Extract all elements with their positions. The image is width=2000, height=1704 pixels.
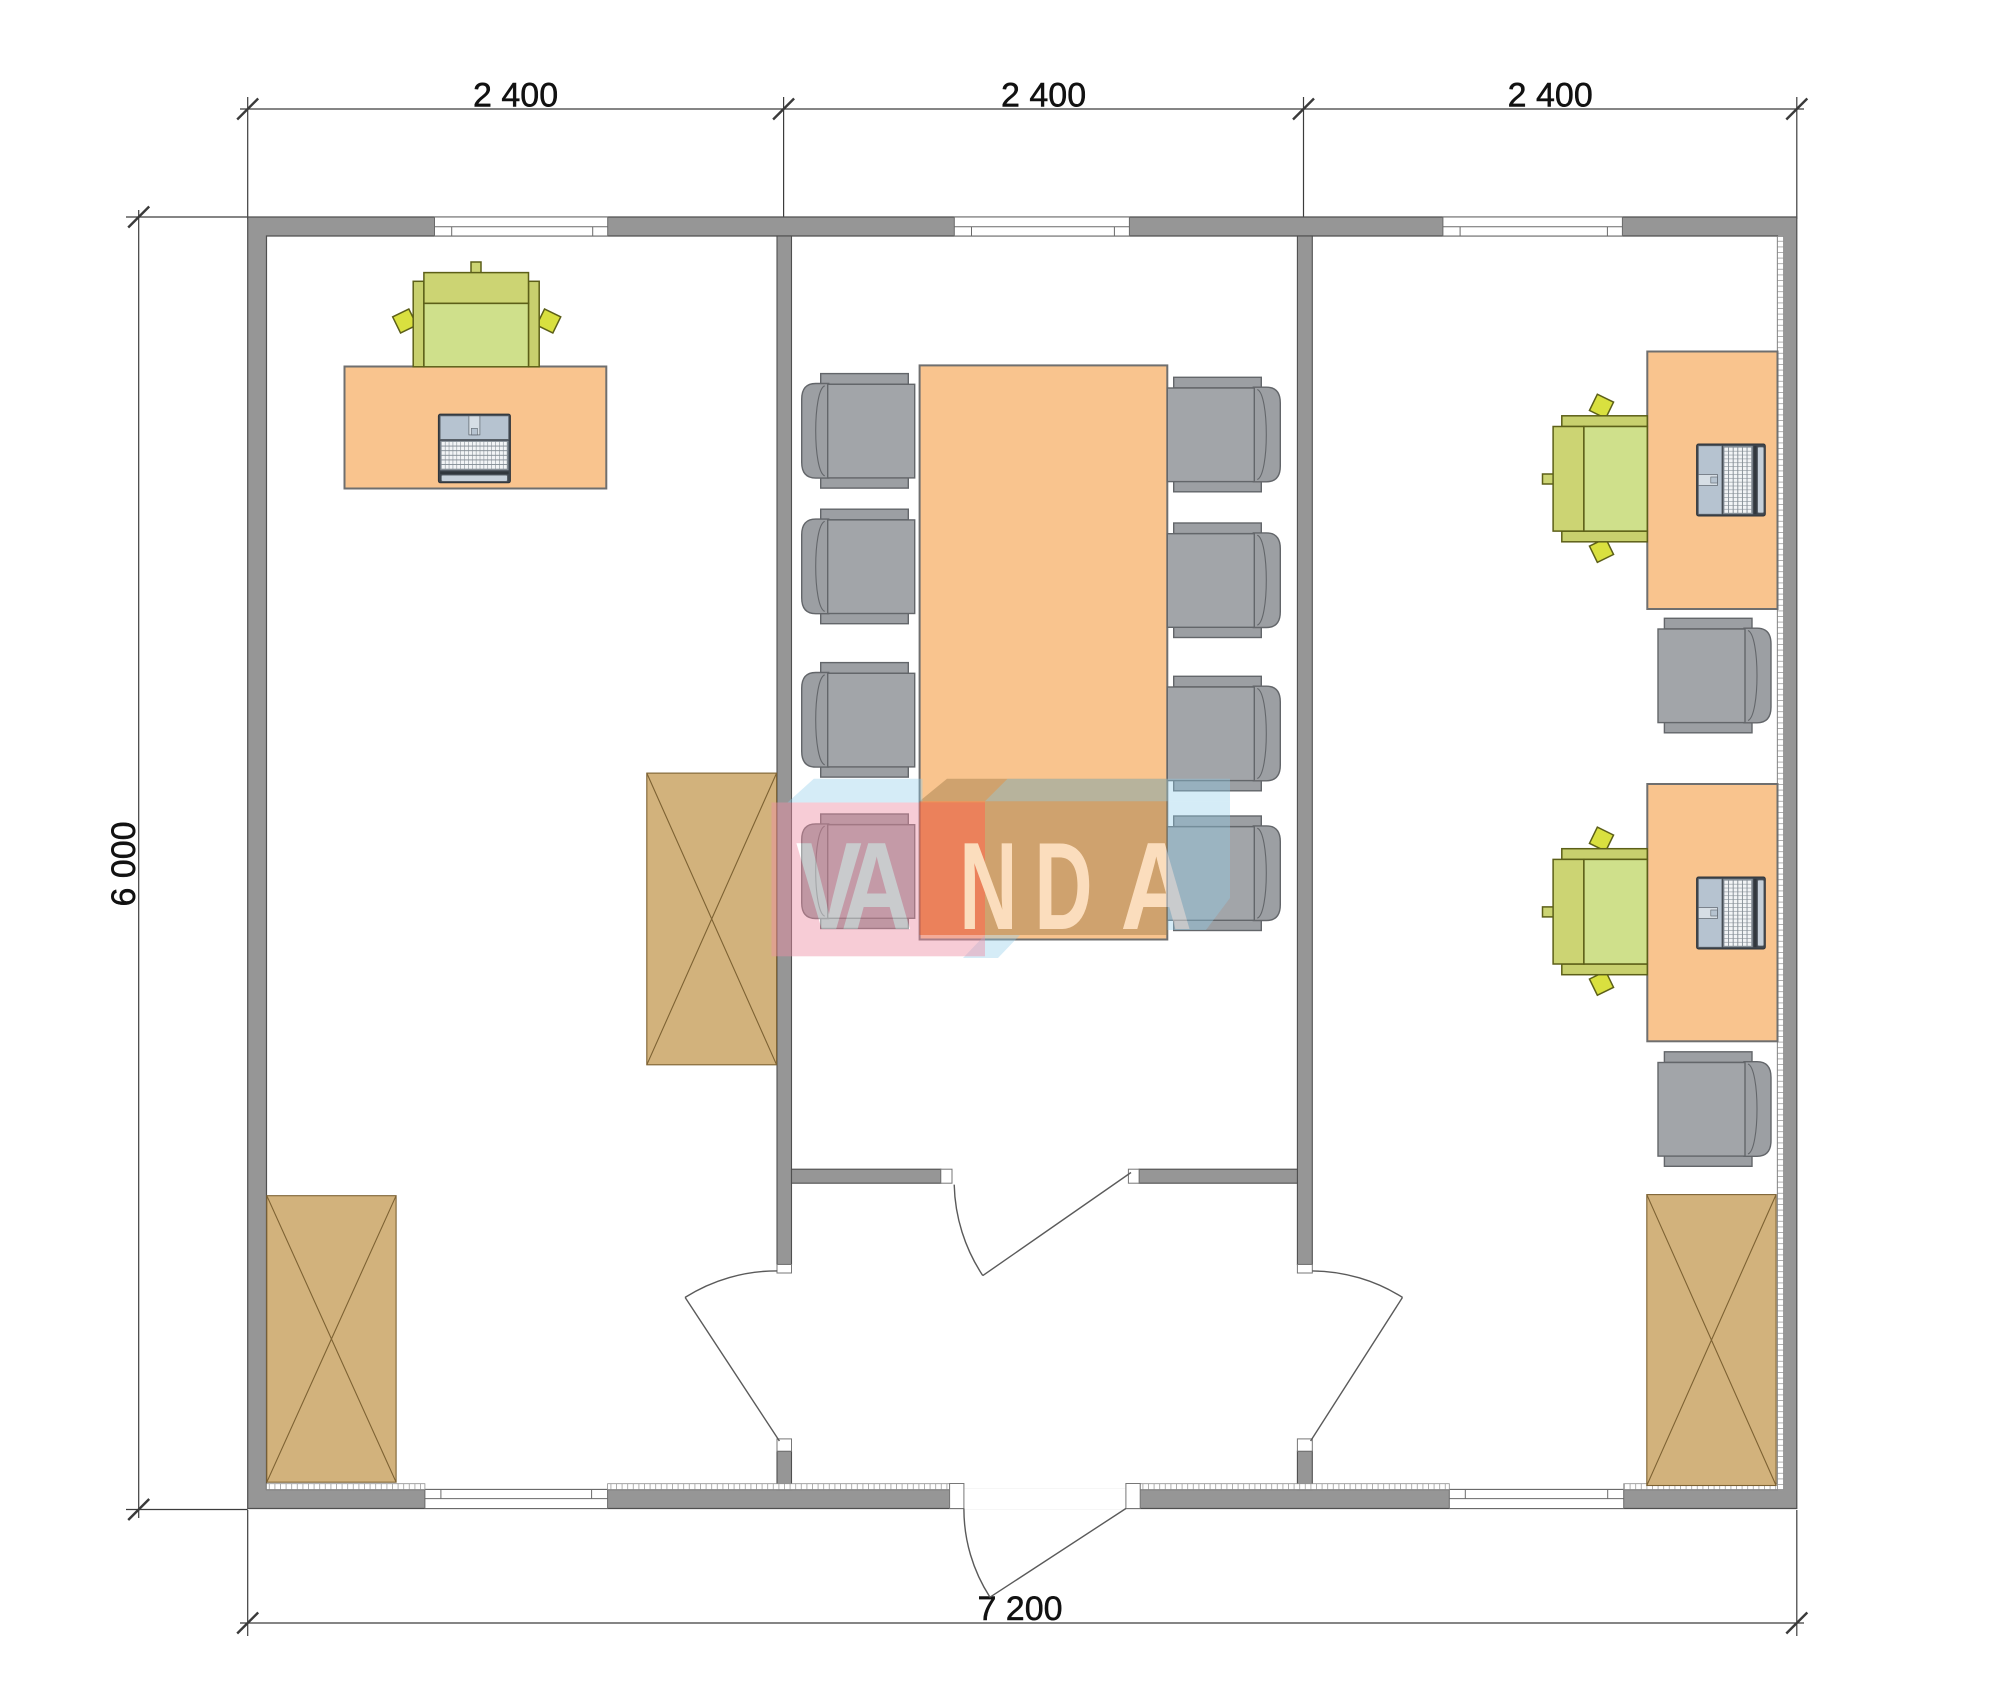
svg-text:A: A [1121,816,1193,955]
svg-text:2 400: 2 400 [1508,77,1593,115]
svg-text:D: D [1034,818,1092,957]
svg-text:2 400: 2 400 [1001,77,1086,115]
svg-text:A: A [841,816,913,955]
svg-text:N: N [959,818,1017,957]
svg-text:6 000: 6 000 [105,821,143,906]
svg-text:7 200: 7 200 [977,1590,1062,1628]
svg-text:2 400: 2 400 [473,77,558,115]
